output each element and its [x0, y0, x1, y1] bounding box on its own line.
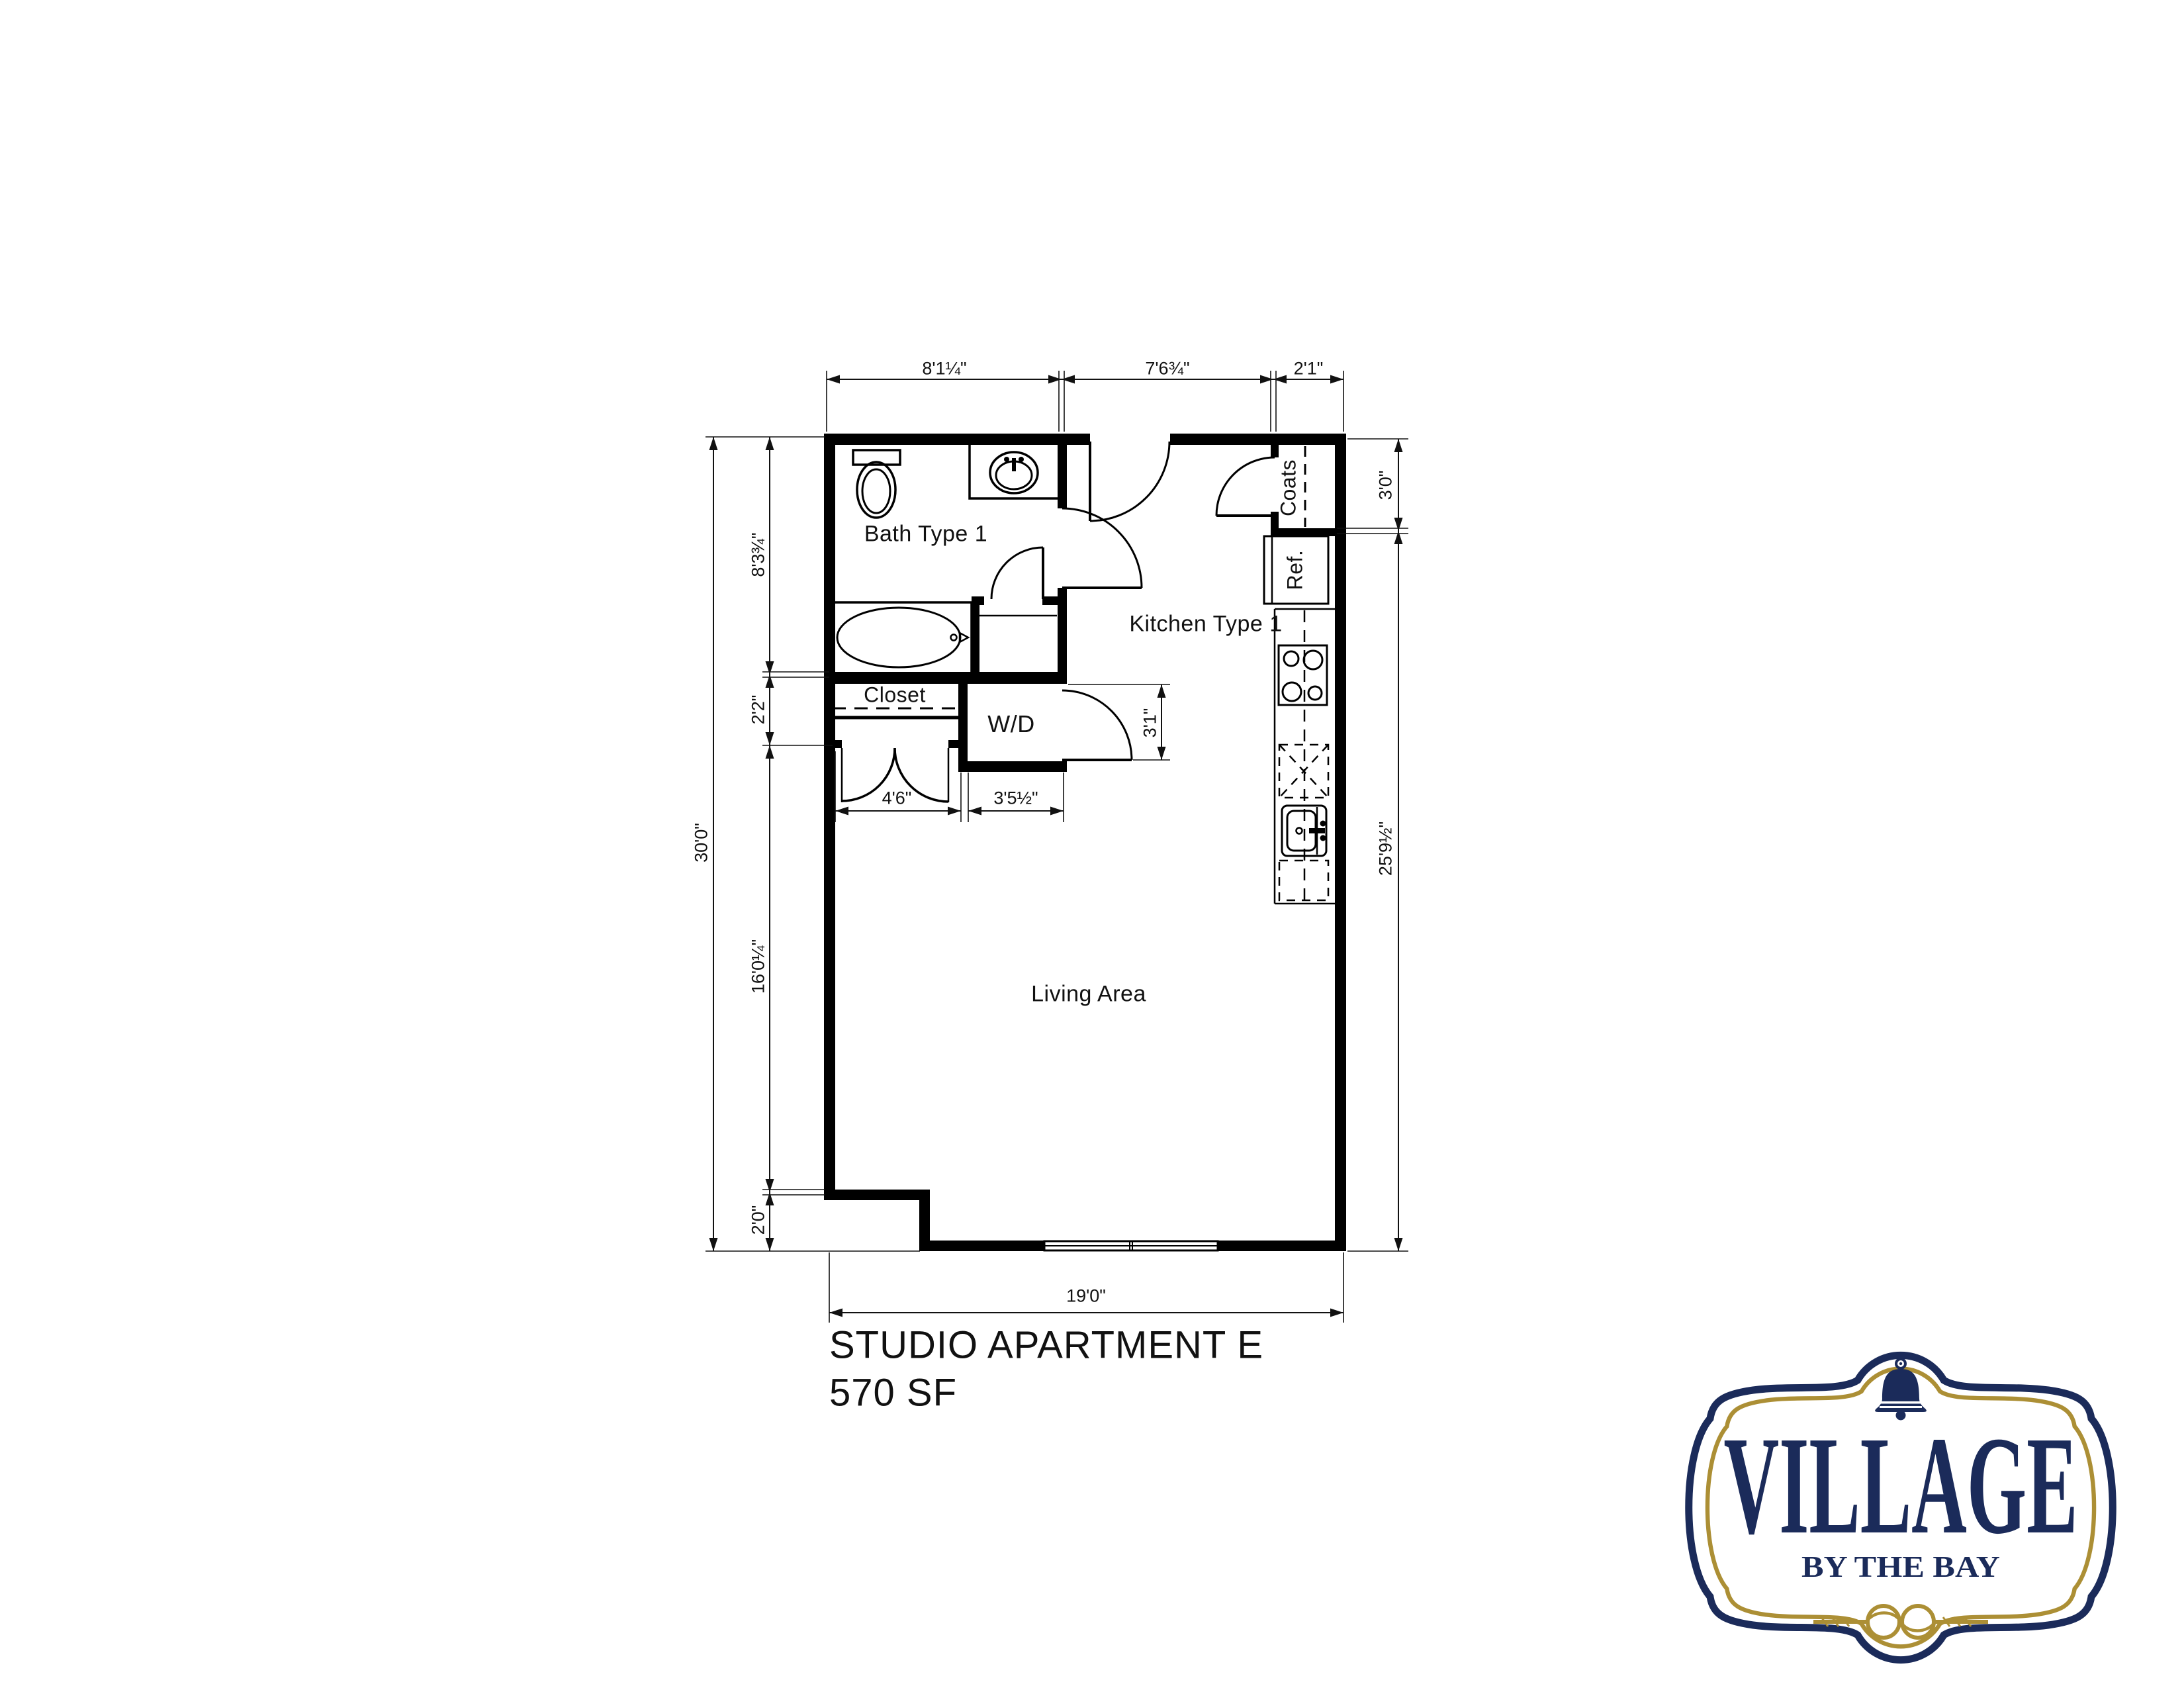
wall-top-left: [824, 434, 1090, 445]
wall-wd-bottom: [958, 761, 1067, 772]
dim-bottom-overall: 19'0": [1066, 1286, 1106, 1307]
dim-top-1: 8'1¼": [922, 359, 966, 379]
dim-left-4: 2'0": [749, 1205, 769, 1235]
walls: [824, 434, 1346, 1251]
kitchen-counter: [1275, 609, 1335, 904]
dim-wd-depth: 3'1": [1140, 708, 1161, 738]
wall-top-right: [1170, 434, 1346, 445]
wall-coats-left-upper: [1271, 434, 1279, 457]
room-label-kitchen: Kitchen Type 1: [1129, 612, 1282, 637]
dim-top-2: 7'6¾": [1145, 359, 1189, 379]
fixture-label-ref: Ref.: [1283, 550, 1308, 590]
logo-tagline: BY THE BAY: [1801, 1550, 2000, 1583]
wall-vestibule-top-left: [972, 596, 984, 605]
dimension-lines: [713, 379, 1398, 1313]
vestibule-door: [991, 547, 1043, 599]
dim-top-3: 2'1": [1294, 359, 1324, 379]
dim-left-3: 16'0¼": [749, 939, 769, 994]
stove: [1279, 645, 1327, 705]
wall-wd-left: [958, 683, 968, 771]
bathtub: [834, 602, 972, 673]
floorplan-drawing: VILLAGE BY THE BAY: [0, 0, 2184, 1688]
wall-bifold-stub-left: [833, 740, 842, 748]
wall-right: [1335, 434, 1346, 1251]
wall-left: [824, 434, 835, 1200]
wall-step-horizontal: [824, 1190, 930, 1200]
logo-wordmark: VILLAGE: [1724, 1407, 2078, 1563]
fixture-label-coats: Coats: [1277, 459, 1301, 516]
plan-title: STUDIO APARTMENT E: [829, 1323, 1263, 1368]
wall-coats-bottom: [1271, 528, 1336, 536]
dim-left-1: 8'3¾": [749, 532, 769, 577]
wall-vestibule-top-right: [1042, 596, 1067, 605]
dim-left-2: 2'2": [749, 695, 769, 725]
dim-left-overall: 30'0": [692, 823, 712, 863]
room-label-bath: Bath Type 1: [864, 522, 987, 547]
coats-door: [1216, 457, 1275, 516]
window: [1044, 1239, 1218, 1252]
toilet: [853, 450, 900, 518]
logo-badge: VILLAGE BY THE BAY: [1689, 1355, 2113, 1660]
dim-wd-width: 3'5½": [993, 788, 1038, 809]
wall-tub-right: [972, 598, 979, 672]
entry-door: [1090, 442, 1169, 521]
wall-bifold-stub-right: [948, 740, 962, 748]
dim-right-2: 25'9½": [1376, 821, 1396, 876]
wd-door: [1062, 690, 1132, 760]
fixture-label-wd: W/D: [987, 710, 1034, 738]
dim-closet-opening: 4'6": [882, 788, 912, 809]
dim-right-1: 3'0": [1376, 471, 1396, 500]
kitchen-fixtures: [1264, 536, 1335, 904]
plan-area: 570 SF: [829, 1371, 957, 1415]
room-label-closet: Closet: [864, 683, 926, 708]
bathroom-sink: [970, 442, 1064, 498]
bath-fixtures: [834, 442, 1064, 673]
room-label-living: Living Area: [1031, 982, 1146, 1008]
floorplan-page: VILLAGE BY THE BAY Bath Type 1 Kitc: [0, 0, 2184, 1688]
extension-lines: [705, 371, 1408, 1323]
